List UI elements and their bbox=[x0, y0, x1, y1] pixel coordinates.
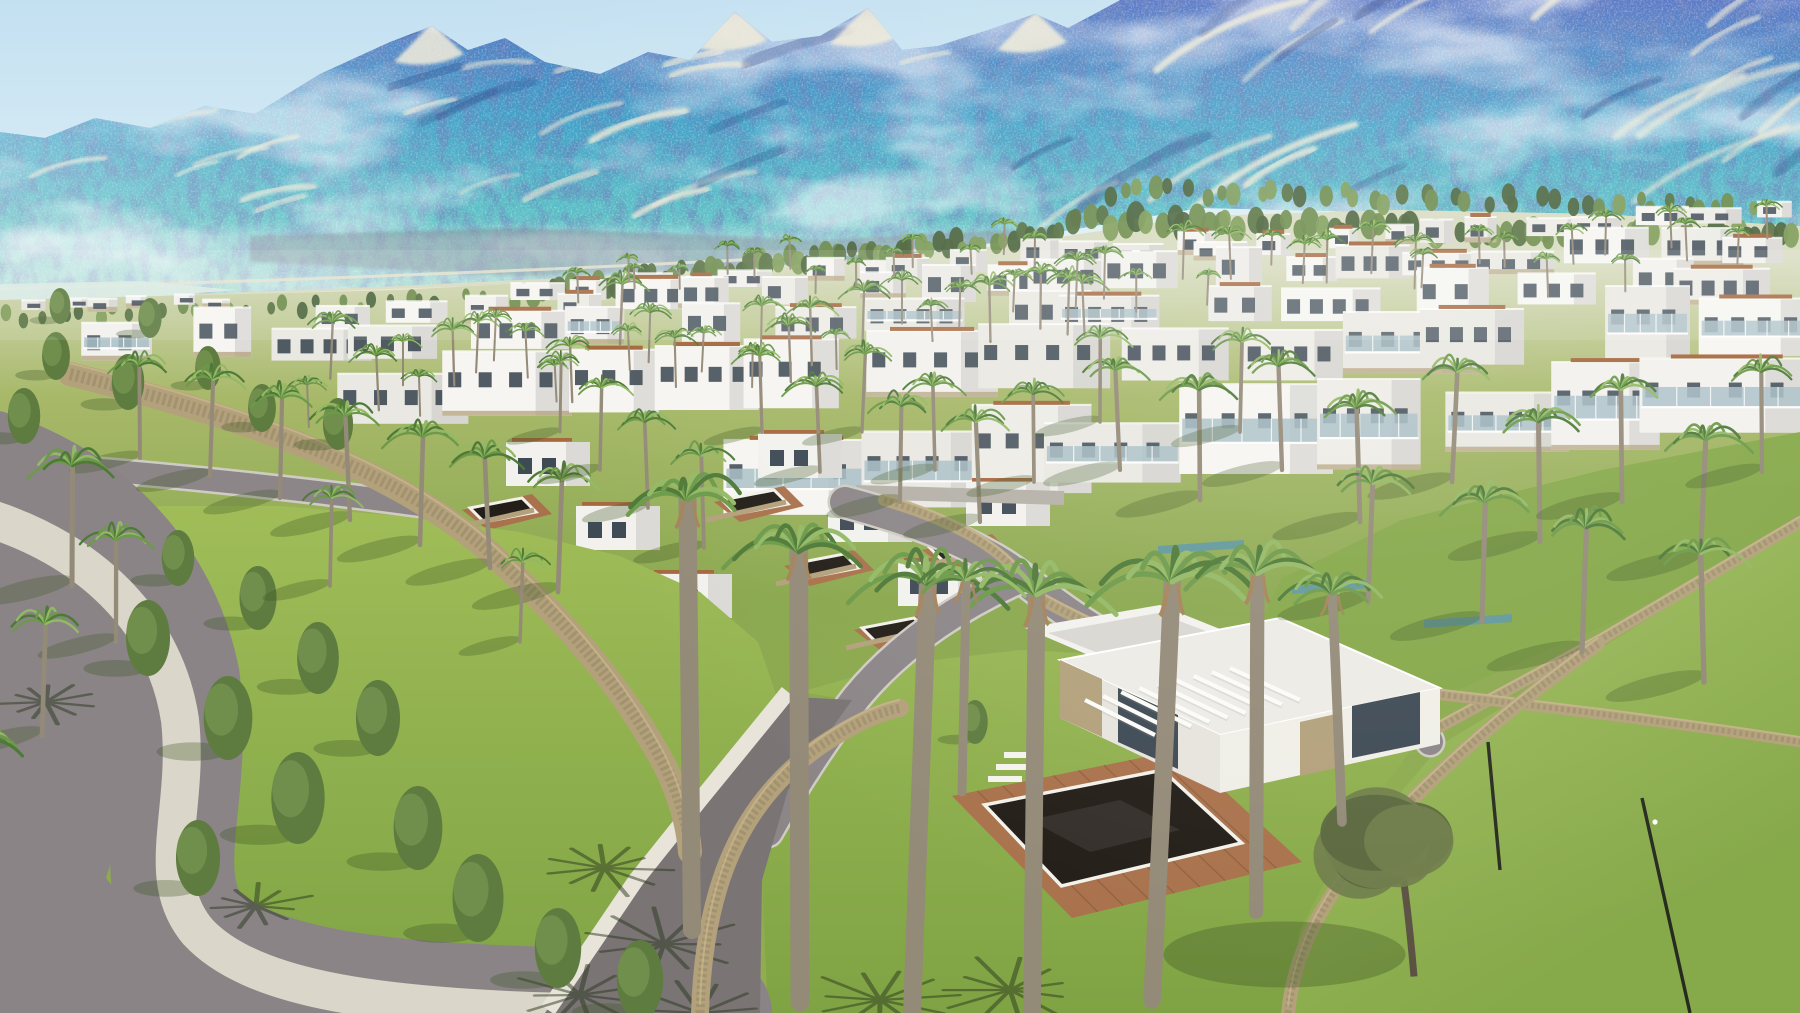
scene-canvas bbox=[0, 0, 1800, 1013]
sunlight-wash bbox=[0, 0, 1800, 1013]
distance-haze bbox=[0, 250, 1800, 340]
sun-glow bbox=[0, 0, 1800, 1013]
aerial-render-3d bbox=[0, 0, 1800, 1013]
